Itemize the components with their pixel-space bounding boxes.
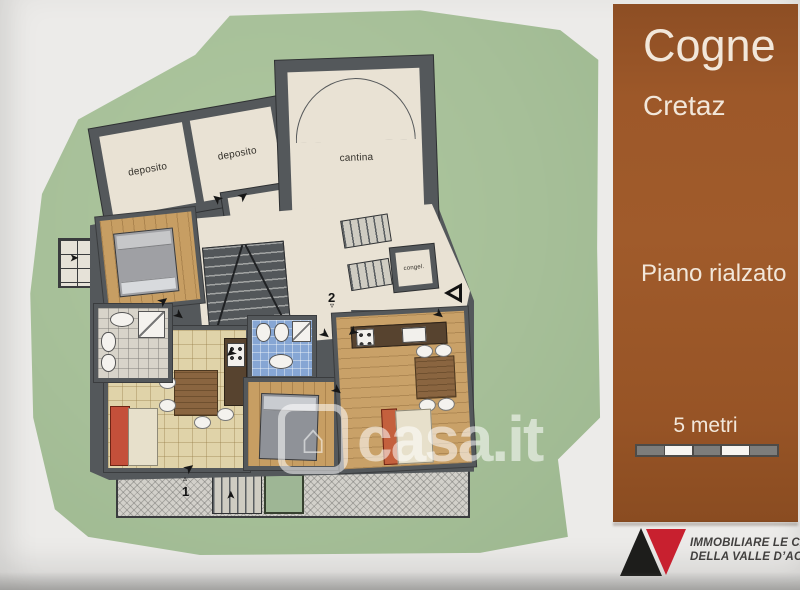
room-closet: congel. — [395, 249, 432, 286]
room-label: deposito — [196, 141, 279, 166]
watermark-text: casa.it — [357, 407, 542, 471]
agency-name-line1: IMMOBILIARE LE CASE — [690, 536, 800, 550]
house-glyph: ⌂ — [300, 415, 325, 463]
watermark: ⌂ casa.it — [278, 404, 542, 474]
agency-name: IMMOBILIARE LE CASE DELLA VALLE D’AOSTA … — [690, 536, 800, 564]
closet-block: congel. — [390, 244, 438, 292]
scale-segment — [722, 446, 749, 455]
sink — [269, 354, 293, 369]
scale-segment — [750, 446, 777, 455]
chair — [217, 408, 234, 421]
toilet — [101, 332, 116, 352]
doormat — [264, 474, 304, 514]
room-bathroom-2 — [252, 320, 312, 376]
room-label: cantina — [290, 150, 422, 166]
bed-footboard — [121, 276, 176, 294]
floorplan-listing-image: ➤ deposito deposito cantina congel. — [0, 0, 800, 590]
sink — [110, 312, 134, 327]
bidet — [101, 354, 116, 372]
side-entrance-arrow-icon: ➤ — [70, 254, 78, 264]
info-panel: Cogne Cretaz Piano rialzato 5 metri — [613, 4, 798, 522]
bidet — [274, 323, 289, 342]
door-number-1: 1 — [182, 484, 189, 499]
sofa-bed — [128, 408, 158, 466]
floor-label: Piano rialzato — [641, 260, 786, 288]
room-label: deposito — [105, 157, 190, 182]
room-bedroom-1 — [100, 211, 201, 308]
room-cantina: cantina — [287, 68, 424, 224]
room-label: congel. — [397, 263, 431, 273]
chair — [159, 399, 176, 412]
room-deposito-left: deposito — [99, 122, 196, 217]
door-mark-icon: ▿ — [330, 302, 334, 310]
sofa-back — [110, 406, 130, 466]
scale-segment — [637, 446, 664, 455]
chair — [194, 416, 211, 429]
logo-triangle-red-icon — [646, 529, 686, 575]
scale-bar — [635, 444, 779, 457]
scale-segment — [694, 446, 721, 455]
double-bed-1 — [113, 227, 179, 297]
sink-unit — [402, 327, 427, 343]
stair-up-arrow-icon: ➤ — [227, 491, 237, 499]
toilet — [256, 323, 271, 342]
door-mark-icon: ▵ — [183, 475, 187, 483]
dining-table — [174, 370, 218, 416]
house-icon: ⌂ — [278, 404, 348, 474]
scale-segment — [665, 446, 692, 455]
shower — [138, 311, 165, 338]
vault-arch — [294, 76, 416, 143]
room-bathroom-1 — [98, 308, 168, 378]
bed-pillows — [116, 231, 171, 251]
scale-label: 5 metri — [613, 414, 798, 438]
locality-subtitle: Cretaz — [643, 90, 725, 122]
entrance-arrow-inner — [450, 288, 459, 298]
shower — [292, 321, 311, 342]
living-table — [414, 355, 456, 399]
stair-guide-line — [212, 241, 244, 340]
kitchenette-counter — [351, 322, 448, 349]
agency-name-line2: DELLA VALLE D’AOSTA s.r.l. — [690, 550, 800, 564]
city-title: Cogne — [643, 20, 776, 72]
